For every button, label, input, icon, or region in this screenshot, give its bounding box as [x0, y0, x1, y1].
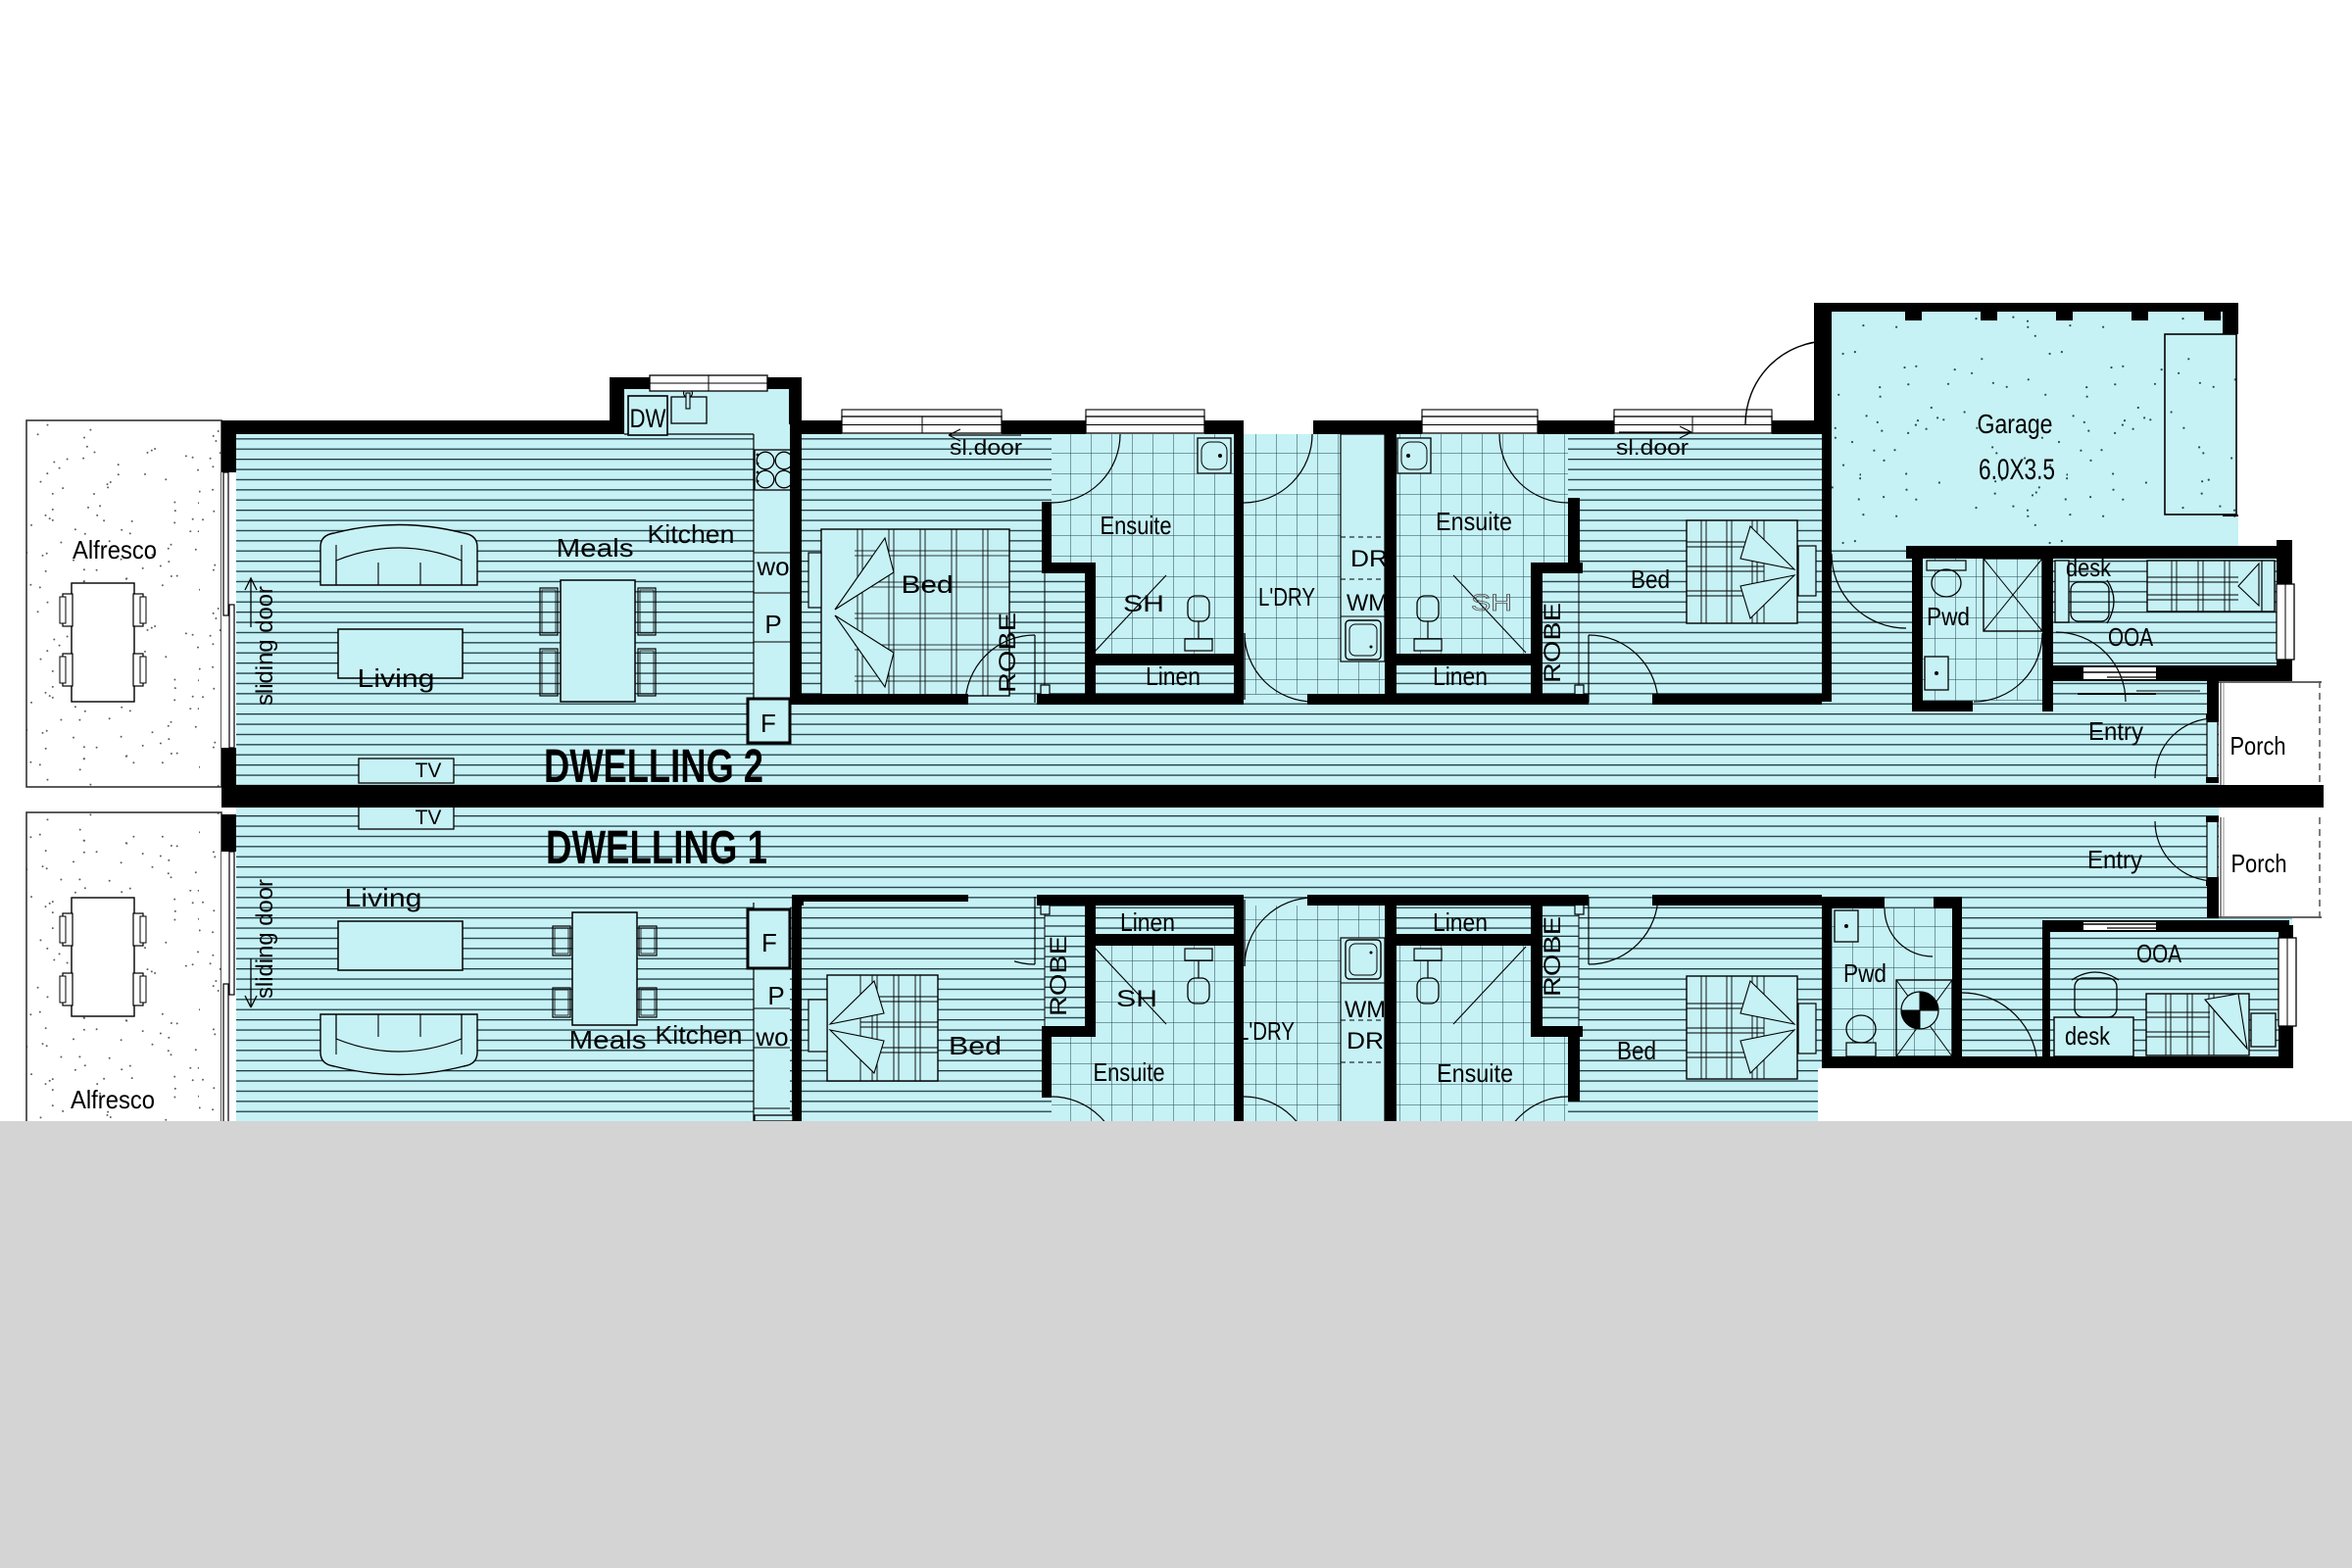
- svg-text:sliding door: sliding door: [252, 586, 278, 706]
- svg-text:ROBE: ROBE: [995, 612, 1021, 693]
- svg-text:Pwd: Pwd: [1843, 958, 1886, 988]
- svg-text:Bed: Bed: [949, 1031, 1002, 1060]
- svg-text:sl.door: sl.door: [950, 435, 1022, 460]
- svg-text:Linen: Linen: [1120, 907, 1175, 937]
- svg-text:DWELLING 2: DWELLING 2: [544, 741, 763, 793]
- svg-text:desk: desk: [2066, 553, 2112, 582]
- svg-text:F: F: [760, 709, 776, 738]
- svg-text:OOA: OOA: [2136, 939, 2182, 968]
- svg-text:L'DRY: L'DRY: [1238, 1016, 1295, 1046]
- svg-text:Alfresco: Alfresco: [73, 535, 157, 564]
- svg-text:Entry: Entry: [2088, 716, 2143, 746]
- svg-text:WM: WM: [1347, 590, 1388, 616]
- svg-text:Porch: Porch: [2230, 731, 2286, 760]
- svg-text:Ensuite: Ensuite: [1101, 511, 1172, 540]
- svg-text:Linen: Linen: [1146, 661, 1200, 691]
- svg-text:Bed: Bed: [1631, 564, 1670, 594]
- svg-text:Kitchen: Kitchen: [648, 519, 735, 549]
- svg-text:ROBE: ROBE: [1540, 603, 1566, 683]
- svg-text:Meals: Meals: [557, 533, 634, 563]
- svg-text:Meals: Meals: [569, 1025, 647, 1054]
- svg-text:Bed: Bed: [1617, 1036, 1656, 1065]
- svg-text:WM: WM: [1345, 997, 1386, 1023]
- svg-text:Garage: Garage: [1978, 409, 2053, 439]
- svg-text:TV: TV: [416, 759, 442, 782]
- svg-text:DR: DR: [1350, 546, 1388, 572]
- svg-text:Living: Living: [358, 663, 435, 693]
- svg-text:Alfresco: Alfresco: [71, 1085, 155, 1114]
- svg-text:P: P: [764, 610, 781, 639]
- svg-text:Linen: Linen: [1433, 661, 1488, 691]
- svg-text:Living: Living: [345, 883, 422, 912]
- svg-text:OOA: OOA: [2108, 622, 2154, 652]
- svg-text:desk: desk: [2065, 1021, 2111, 1051]
- svg-text:DWELLING 1: DWELLING 1: [546, 822, 767, 874]
- svg-text:Ensuite: Ensuite: [1436, 507, 1512, 536]
- svg-text:ROBE: ROBE: [1046, 936, 1072, 1016]
- svg-text:SH: SH: [1123, 591, 1164, 617]
- svg-text:ROBE: ROBE: [1540, 916, 1566, 997]
- svg-text:DR: DR: [1347, 1028, 1384, 1054]
- svg-text:L'DRY: L'DRY: [1258, 582, 1315, 612]
- svg-text:Entry: Entry: [2087, 845, 2142, 874]
- svg-text:Ensuite: Ensuite: [1437, 1058, 1513, 1088]
- svg-text:sl.door: sl.door: [1616, 435, 1689, 460]
- svg-text:Ensuite: Ensuite: [1094, 1057, 1165, 1087]
- svg-text:6.0X3.5: 6.0X3.5: [1979, 454, 2055, 486]
- svg-text:P: P: [767, 981, 784, 1010]
- svg-text:wo: wo: [755, 1022, 788, 1052]
- svg-text:Porch: Porch: [2231, 849, 2287, 878]
- svg-text:wo: wo: [756, 552, 789, 581]
- svg-text:Bed: Bed: [902, 571, 954, 599]
- svg-text:Kitchen: Kitchen: [656, 1020, 743, 1050]
- svg-text:SH: SH: [1471, 590, 1512, 616]
- svg-text:sliding door: sliding door: [252, 879, 278, 999]
- svg-text:DW: DW: [630, 404, 666, 433]
- svg-text:TV: TV: [416, 807, 442, 829]
- svg-text:Linen: Linen: [1433, 907, 1488, 937]
- svg-text:Pwd: Pwd: [1927, 602, 1970, 631]
- svg-text:SH: SH: [1116, 986, 1157, 1012]
- svg-text:F: F: [761, 928, 777, 957]
